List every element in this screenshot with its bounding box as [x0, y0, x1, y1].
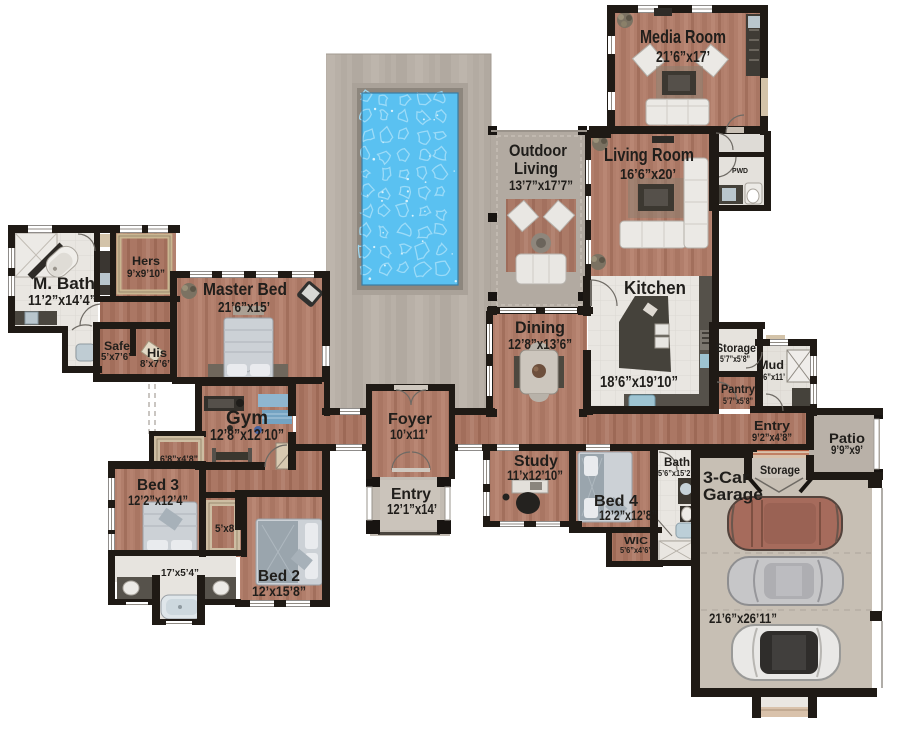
svg-text:12’1”x14’: 12’1”x14’: [387, 502, 437, 518]
svg-text:5’6”x4’6”: 5’6”x4’6”: [620, 545, 652, 555]
svg-text:11’x12’10”: 11’x12’10”: [507, 468, 563, 483]
svg-text:Living: Living: [514, 159, 558, 178]
svg-text:9’x9’10”: 9’x9’10”: [127, 268, 165, 280]
svg-text:Mud: Mud: [758, 358, 784, 372]
svg-text:12’2”x12’4”: 12’2”x12’4”: [128, 493, 188, 508]
svg-text:Dining: Dining: [515, 318, 565, 337]
svg-text:Garage: Garage: [703, 485, 763, 504]
svg-text:Hers: Hers: [132, 254, 160, 268]
svg-text:21’6”x26’11”: 21’6”x26’11”: [709, 610, 777, 626]
svg-text:Patio: Patio: [829, 430, 865, 446]
svg-text:Storage: Storage: [760, 463, 800, 477]
svg-text:9’9”x9’: 9’9”x9’: [831, 445, 863, 457]
svg-text:Pantry: Pantry: [721, 384, 756, 396]
svg-text:5’7”x5’8”: 5’7”x5’8”: [720, 354, 750, 364]
svg-text:5’x7’6”: 5’x7’6”: [101, 351, 133, 363]
svg-text:Living Room: Living Room: [604, 145, 694, 165]
svg-text:17’x5’4”: 17’x5’4”: [161, 567, 199, 579]
svg-text:Kitchen: Kitchen: [624, 278, 686, 298]
svg-text:Bed 3: Bed 3: [137, 477, 179, 494]
svg-text:8’x7’6”: 8’x7’6”: [140, 358, 172, 370]
svg-text:11’2”x14’4”: 11’2”x14’4”: [28, 292, 96, 309]
svg-text:PWD: PWD: [732, 168, 748, 175]
svg-text:Entry: Entry: [391, 486, 431, 503]
svg-text:18’6”x19’10”: 18’6”x19’10”: [600, 374, 678, 391]
svg-text:12’8”x13’6”: 12’8”x13’6”: [508, 337, 572, 353]
svg-text:Gym: Gym: [226, 408, 268, 429]
svg-text:Master Bed: Master Bed: [203, 279, 287, 299]
svg-text:Outdoor: Outdoor: [509, 141, 567, 160]
svg-text:9’2”x4’8”: 9’2”x4’8”: [752, 432, 792, 444]
svg-text:21’6”x17’: 21’6”x17’: [656, 49, 710, 66]
svg-text:12’2”x12’8”: 12’2”x12’8”: [599, 508, 657, 523]
svg-text:M. Bath: M. Bath: [33, 274, 95, 293]
svg-text:5’6”x15’2”: 5’6”x15’2”: [658, 468, 694, 478]
svg-text:Bath: Bath: [664, 455, 690, 469]
svg-text:Entry: Entry: [754, 418, 791, 433]
svg-text:6’8”x4’8”: 6’8”x4’8”: [160, 454, 198, 465]
svg-text:16’6”x20’: 16’6”x20’: [620, 166, 676, 183]
svg-text:Media Room: Media Room: [640, 27, 726, 47]
svg-text:7’6”x11’: 7’6”x11’: [757, 372, 785, 383]
svg-text:5’x8’: 5’x8’: [215, 523, 237, 535]
svg-text:5’7”x5’8”: 5’7”x5’8”: [723, 396, 753, 406]
svg-text:Bed 2: Bed 2: [258, 568, 300, 585]
svg-text:10’x11’: 10’x11’: [390, 426, 428, 442]
svg-text:21’6”x15’: 21’6”x15’: [218, 299, 270, 316]
svg-text:12’x15’8”: 12’x15’8”: [252, 584, 306, 599]
svg-text:13’7”x17’7”: 13’7”x17’7”: [509, 177, 573, 193]
svg-text:12’8”x12’10”: 12’8”x12’10”: [210, 427, 284, 444]
